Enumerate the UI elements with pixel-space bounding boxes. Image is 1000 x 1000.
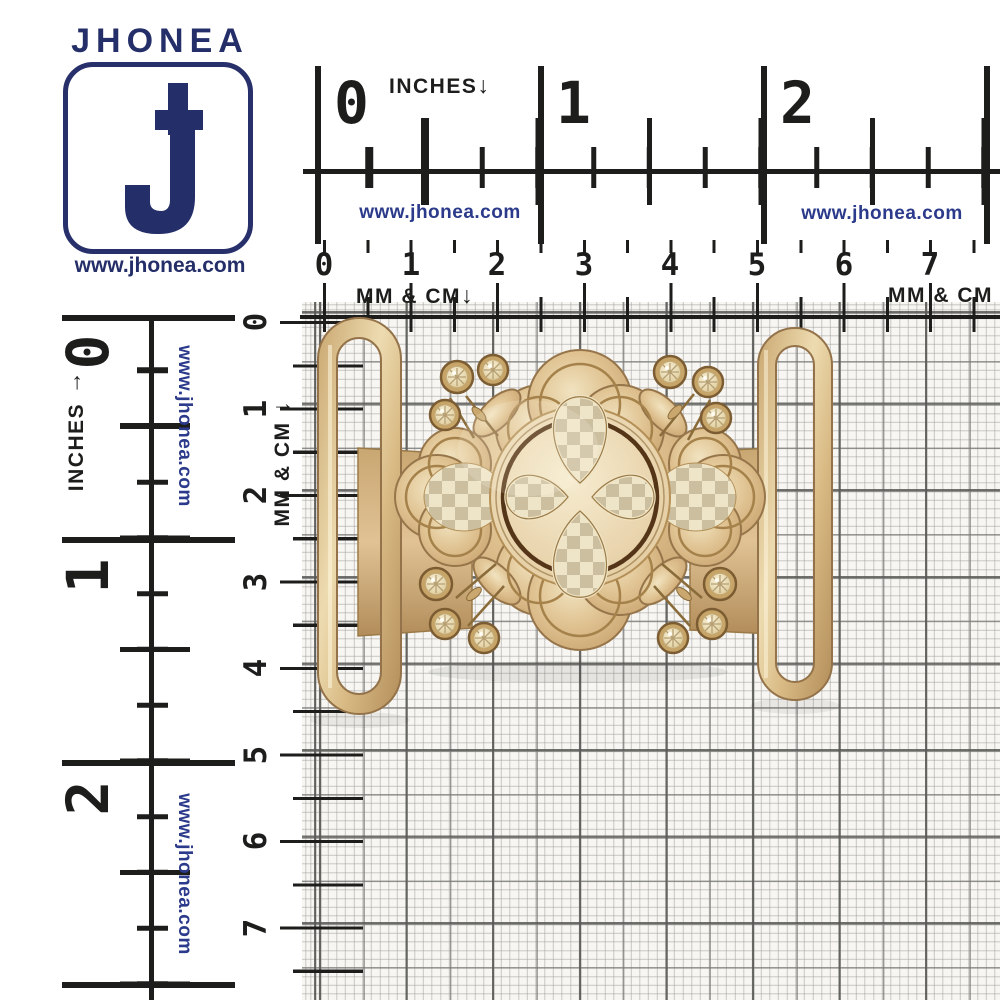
ruler-watermark: www.jhonea.com [350,202,530,224]
top-cm-number: 7 [908,250,952,281]
top-cm-number: 0 [302,250,346,281]
top-inch-number: 1 [556,74,591,132]
left-inch-number: 1 [58,546,118,606]
product-listing-image: JHONEA www.jhonea.com 0 1 2 INCHES↓ www.… [0,0,1000,1000]
top-cm-number: 3 [562,250,606,281]
left-cm-number: 3 [236,562,276,602]
right-arrow-icon: → [271,391,295,415]
left-cm-number: 1 [236,389,276,429]
brand-logo-box [63,62,253,254]
left-cm-number: 4 [236,648,276,688]
left-mm-cm-label: MM & CM [272,414,294,534]
top-cm-number: 5 [735,250,779,281]
down-arrow-icon: ↓ [477,72,490,98]
top-inch-number: 0 [334,74,369,132]
top-cm-number: 6 [822,250,866,281]
brand-j-logo-icon [68,67,248,249]
up-arrow-icon: ↑ [65,369,89,393]
top-inch-half-ticks [315,118,987,205]
left-inch-number: 2 [58,768,118,828]
top-cm-number: 2 [475,250,519,281]
top-cm-number: 4 [648,250,692,281]
left-cm-number: 2 [236,475,276,515]
buckle-right-bar [758,328,832,700]
flower-highlight [458,400,598,496]
brand-name: JHONEA [58,22,262,61]
ruler-watermark: www.jhonea.com [173,336,195,516]
top-cm-number: 1 [389,250,433,281]
ruler-watermark: www.jhonea.com [173,784,195,964]
top-mm-cm-label-right: MM & CM [888,284,993,308]
ruler-watermark: www.jhonea.com [792,203,972,225]
brand-website: www.jhonea.com [48,254,272,278]
left-cm-number: 5 [236,735,276,775]
top-inches-label: INCHES↓ [389,74,490,99]
top-inch-number: 2 [780,74,815,132]
left-cm-number: 0 [236,302,276,342]
left-cm-number: 6 [236,821,276,861]
left-cm-number: 7 [236,908,276,948]
product-photo-gold-flower-buckle [300,300,850,730]
left-inches-label: INCHES [65,387,89,507]
